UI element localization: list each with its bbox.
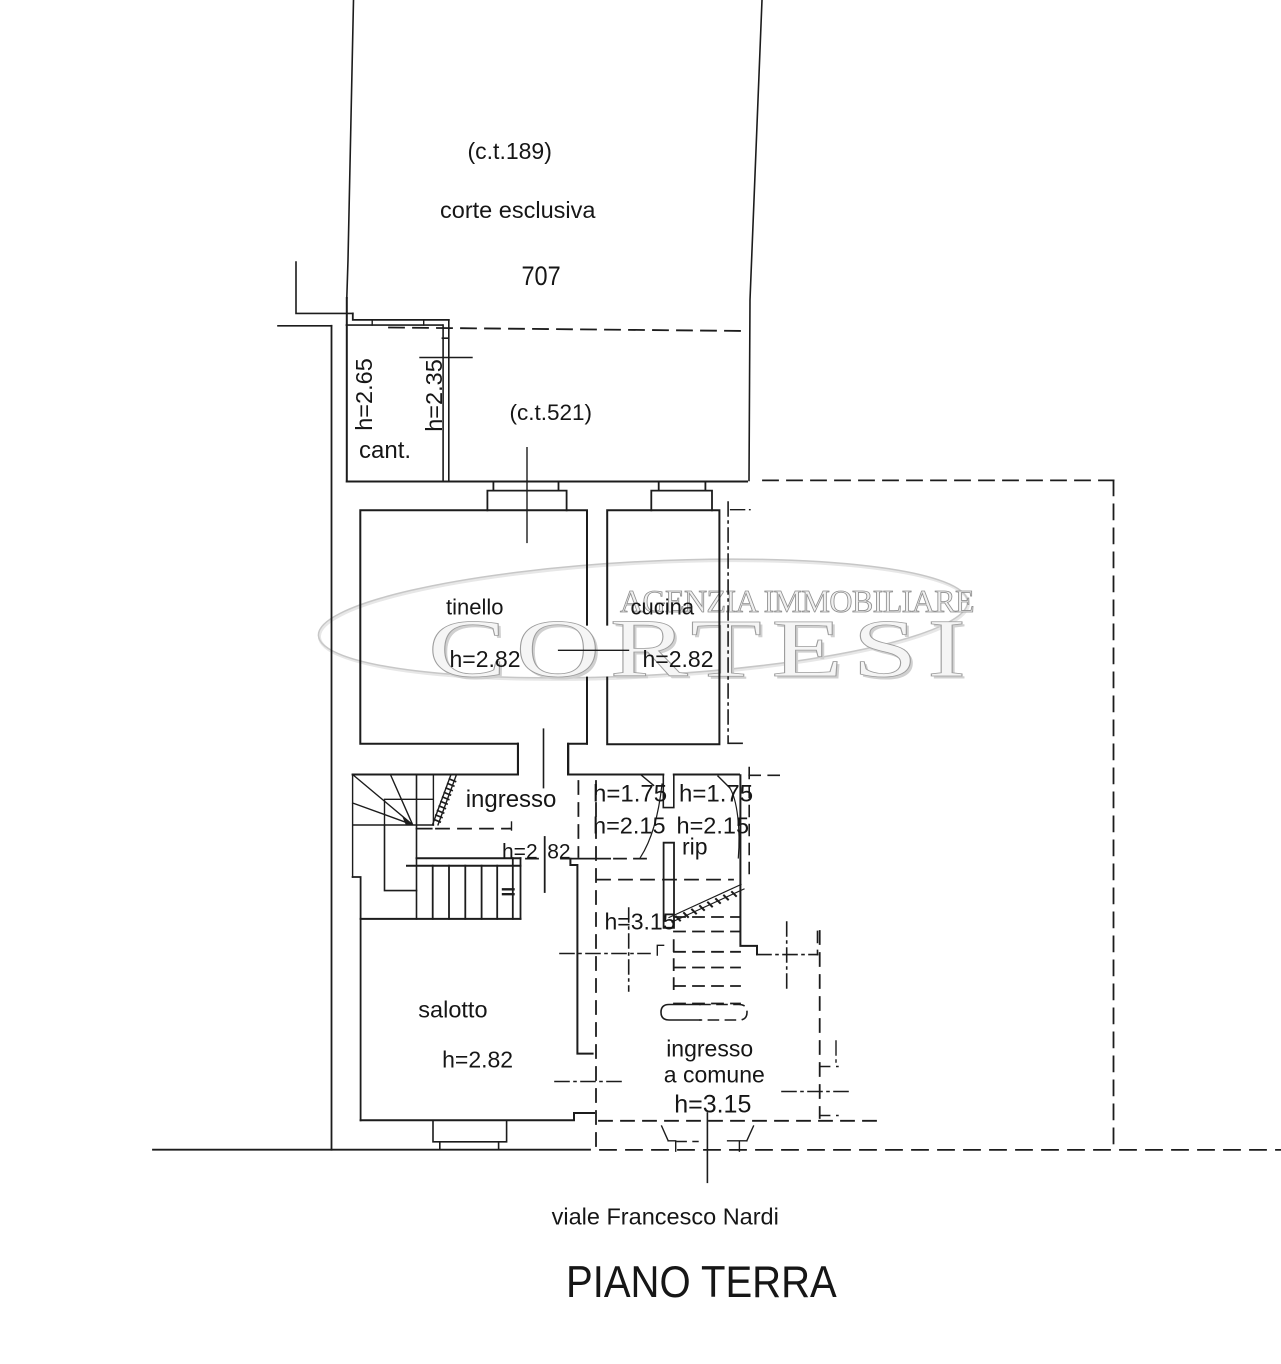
svg-text:cant.: cant. [359,437,411,464]
svg-text:tinello: tinello [446,595,503,620]
svg-text:707: 707 [522,262,561,292]
svg-text:salotto: salotto [418,997,487,1023]
svg-text:cucina: cucina [631,595,695,620]
svg-text:ingresso: ingresso [466,786,557,813]
svg-text:viale Francesco Nardi: viale Francesco Nardi [552,1204,779,1230]
svg-text:corte esclusiva: corte esclusiva [440,197,596,223]
svg-text:(c.t.521): (c.t.521) [510,400,593,425]
svg-text:h=3.15: h=3.15 [605,909,676,935]
svg-text:h=1.75: h=1.75 [679,781,753,808]
svg-text:h=2: h=2 [502,841,538,864]
svg-text:h=2.65: h=2.65 [351,358,377,431]
svg-text:h=3.15: h=3.15 [674,1091,751,1119]
svg-text:h=2.82: h=2.82 [643,646,714,672]
svg-text:82: 82 [547,841,570,864]
svg-text:h=2.82: h=2.82 [450,646,521,672]
svg-text:PIANO TERRA: PIANO TERRA [566,1257,837,1306]
svg-text:h=2.82: h=2.82 [442,1047,513,1073]
svg-text:h=2.35: h=2.35 [421,359,447,432]
svg-text:rip: rip [682,834,708,860]
svg-text:ingresso: ingresso [666,1036,753,1062]
svg-text:(c.t.189): (c.t.189) [468,138,552,164]
svg-text:h=1.75: h=1.75 [593,781,667,808]
svg-text:a comune: a comune [664,1062,765,1088]
svg-text:h=2.15: h=2.15 [593,813,666,839]
